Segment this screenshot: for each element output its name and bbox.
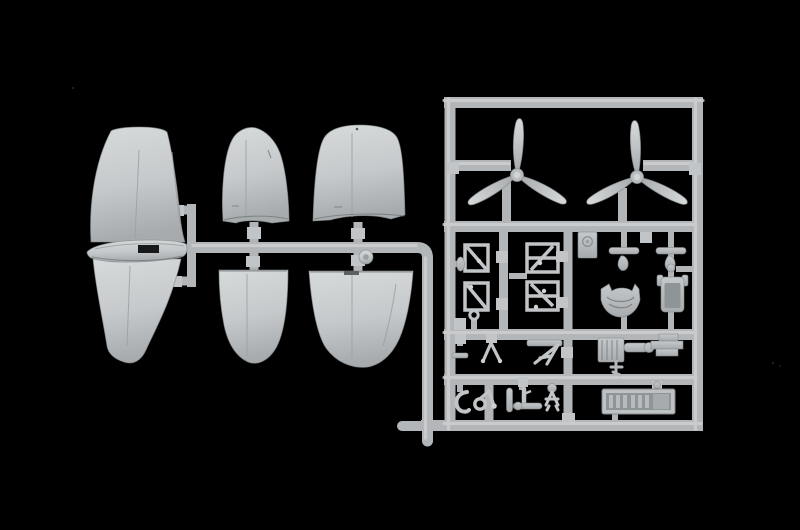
strut-lug [457,257,465,271]
elevator-notch [344,271,359,275]
propeller-hub-cap [634,174,640,180]
blade-strip-part [507,388,513,412]
stick-foot [514,402,522,410]
instrument-panel-plate [578,232,597,258]
dust-speck [772,362,774,364]
bolt-head [538,261,542,265]
cowl-layer [659,334,678,341]
cowl-layer [656,349,678,356]
wishbone-foot [498,359,502,363]
sprue-svg [0,0,800,530]
round-hub-part-center [363,254,369,260]
cockpit-slot [138,245,159,253]
bolt-head [534,305,538,309]
locating-hole [356,128,359,131]
bolt-head [477,259,481,263]
pin-foot [452,353,468,358]
instrument-dial-center [586,240,590,244]
propeller-hub-cap [514,172,520,178]
lever-bar [609,248,639,255]
tray-plain-panel [653,394,669,409]
seat-mount-bead [667,264,675,272]
lever-knob [491,403,497,409]
sprue-photo [0,0,800,530]
seat-pan [665,283,681,308]
dust-speck [72,87,74,89]
tray-mount-bead [654,382,661,389]
cowl-layer [651,341,683,349]
instrument-panel [578,232,597,258]
lever-bar [656,248,686,255]
outer-wing-upper-half [313,125,405,221]
bolt-head [542,289,546,293]
wishbone-foot [481,359,485,363]
bolt-head [469,285,473,289]
dust-speck [779,365,781,367]
